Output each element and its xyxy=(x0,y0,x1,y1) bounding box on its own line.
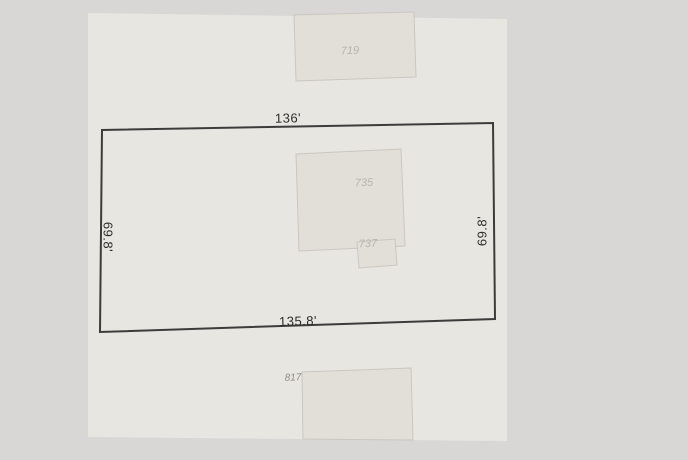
parcel-map-canvas[interactable]: 136' 135.8' 69.8' 69.8' 719 735 737 817 xyxy=(0,0,688,460)
building-735-footprint xyxy=(296,149,405,251)
parcel-map-drawing xyxy=(0,0,688,460)
building-737-footprint xyxy=(357,239,397,268)
building-719-footprint xyxy=(294,12,416,81)
building-817-footprint xyxy=(302,368,413,440)
